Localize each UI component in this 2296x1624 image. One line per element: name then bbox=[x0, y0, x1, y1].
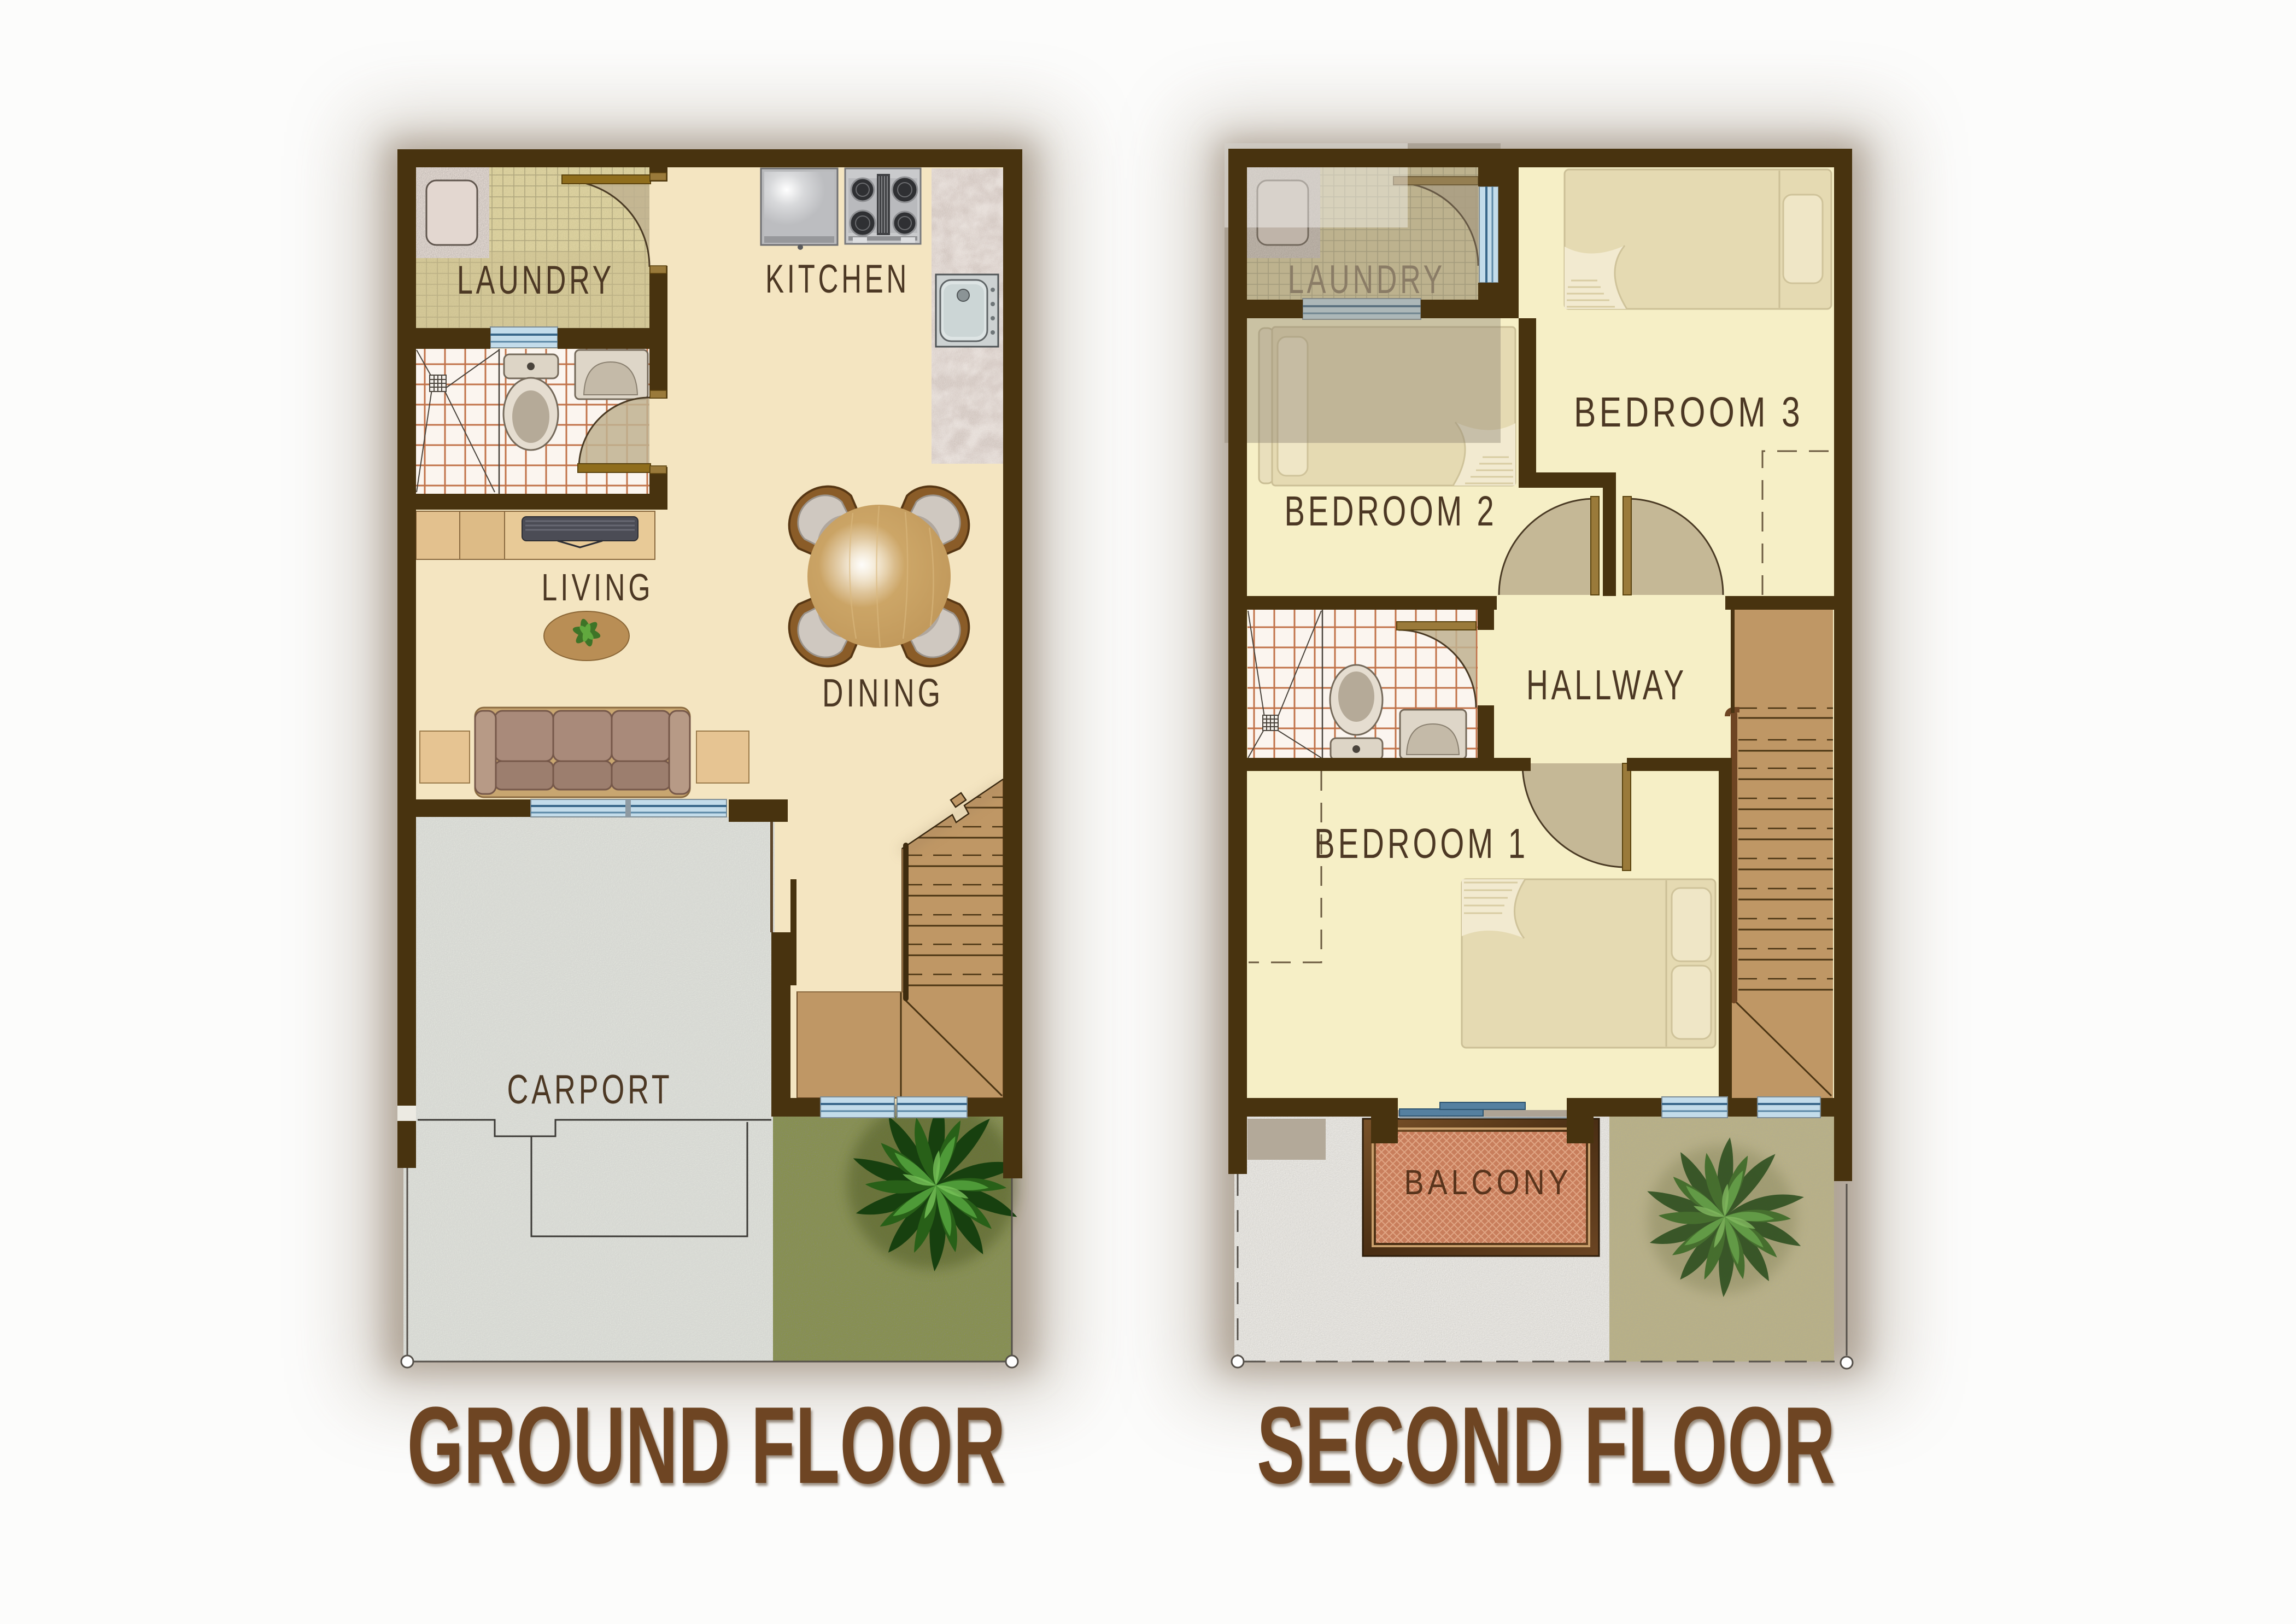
svg-text:BEDROOM 1: BEDROOM 1 bbox=[1314, 820, 1528, 867]
svg-text:LAUNDRY: LAUNDRY bbox=[457, 258, 614, 302]
svg-text:BEDROOM 2: BEDROOM 2 bbox=[1285, 488, 1497, 535]
svg-text:LAUNDRY: LAUNDRY bbox=[1288, 258, 1445, 302]
svg-text:CARPORT: CARPORT bbox=[507, 1066, 673, 1112]
svg-text:BEDROOM 3: BEDROOM 3 bbox=[1574, 389, 1803, 436]
svg-text:BALCONY: BALCONY bbox=[1404, 1162, 1572, 1202]
svg-text:SECOND FLOOR: SECOND FLOOR bbox=[1257, 1385, 1835, 1506]
svg-text:GROUND FLOOR: GROUND FLOOR bbox=[407, 1385, 1006, 1506]
svg-text:KITCHEN: KITCHEN bbox=[765, 257, 910, 301]
svg-text:DINING: DINING bbox=[822, 671, 944, 715]
svg-text:HALLWAY: HALLWAY bbox=[1526, 662, 1687, 709]
svg-text:LIVING: LIVING bbox=[542, 566, 654, 609]
